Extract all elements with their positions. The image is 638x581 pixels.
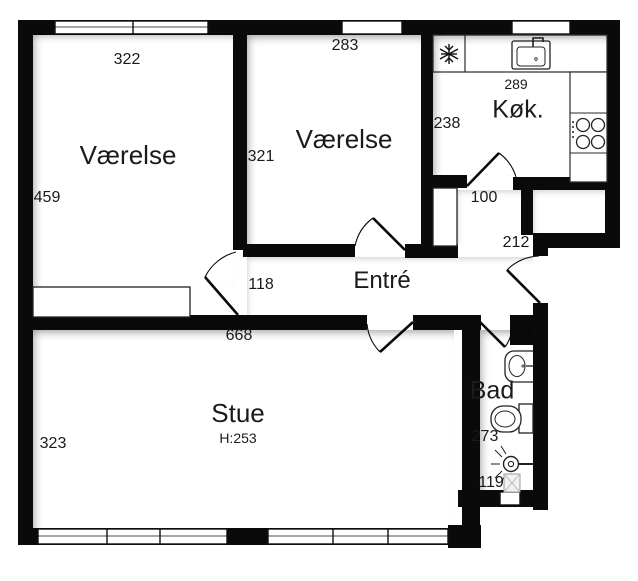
dim-bedroom1-width: 322 bbox=[114, 52, 141, 68]
door-leaf-stue bbox=[380, 322, 413, 352]
dim-kitchen-width: 289 bbox=[504, 77, 527, 91]
floor-plan: Værelse 322 459 Værelse 283 321 Køk. 289… bbox=[0, 0, 638, 581]
wall-bad-top-corner bbox=[510, 315, 548, 345]
wall-entry-stub bbox=[533, 246, 548, 256]
door-leaf-bad bbox=[480, 322, 505, 347]
closet-stue bbox=[33, 287, 190, 317]
door-leaf-bedroom1 bbox=[205, 277, 238, 315]
dim-stue-depth: 323 bbox=[40, 436, 67, 452]
dim-bedroom2-width: 283 bbox=[332, 38, 359, 54]
dim-stue-ceiling-height: H:253 bbox=[219, 431, 256, 445]
dim-bedroom2-depth: 321 bbox=[248, 149, 275, 165]
windows bbox=[38, 21, 570, 544]
window-kitchen bbox=[512, 21, 570, 34]
wall-bad-south bbox=[458, 490, 533, 507]
dim-bedroom1-depth: 459 bbox=[34, 190, 61, 206]
dim-entry-width: 212 bbox=[503, 235, 530, 251]
window-stue-left bbox=[38, 529, 227, 544]
door-leaf-bedroom2 bbox=[373, 218, 405, 250]
wall-kitchen-south-left bbox=[421, 175, 467, 188]
room-label-bedroom2: Værelse bbox=[296, 126, 393, 152]
kitchen-sink-icon bbox=[512, 38, 550, 69]
dim-bad-depth: 273 bbox=[472, 429, 499, 445]
dim-stue-width: 668 bbox=[226, 328, 253, 344]
door-arc-entrance bbox=[507, 256, 539, 270]
door-arc-bedroom1 bbox=[205, 252, 236, 277]
dim-door-gap: 118 bbox=[248, 277, 274, 293]
dim-kitchen-depth: 238 bbox=[434, 116, 461, 132]
dim-hall-width: 100 bbox=[471, 190, 498, 206]
wall-exterior-left bbox=[18, 20, 33, 545]
door-arc-kitchen bbox=[499, 153, 517, 181]
drain-icon bbox=[504, 474, 520, 492]
room-label-kitchen: Køk. bbox=[492, 98, 543, 123]
door-arc-bedroom2 bbox=[355, 218, 373, 246]
wall-step-below-kitchen bbox=[533, 233, 620, 248]
door-leaf-entrance bbox=[507, 270, 540, 303]
window-bedroom2 bbox=[342, 21, 402, 34]
bathroom-fixtures bbox=[491, 351, 533, 492]
room-label-bad: Bad bbox=[470, 379, 514, 404]
window-stue-right bbox=[268, 529, 448, 544]
floor-plan-drawing bbox=[0, 0, 638, 581]
room-label-stue: Stue bbox=[211, 400, 265, 426]
wall-bottom-right-corner bbox=[448, 525, 481, 548]
wall-between-bedrooms bbox=[233, 20, 247, 250]
door-arc-stue bbox=[367, 324, 380, 352]
window-bedroom1 bbox=[55, 21, 208, 34]
room-label-bedroom1: Værelse bbox=[80, 142, 177, 168]
wall-bedroom2-south-left bbox=[243, 244, 355, 257]
closet-hall bbox=[433, 188, 457, 246]
room-label-entre: Entré bbox=[353, 269, 410, 293]
window-bad-small bbox=[500, 492, 520, 505]
dim-bad-width: 119 bbox=[478, 475, 504, 491]
door-leaf-kitchen bbox=[467, 153, 499, 186]
wall-bedroom2-right bbox=[421, 20, 433, 257]
